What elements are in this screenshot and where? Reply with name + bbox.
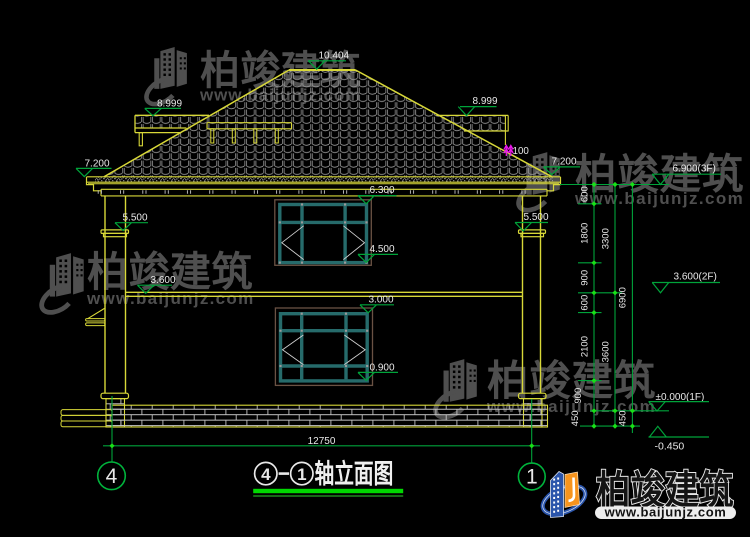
svg-text:5.500: 5.500	[524, 212, 549, 223]
svg-text:450: 450	[570, 410, 581, 426]
svg-text:1: 1	[297, 465, 306, 484]
svg-text:3.600(2F): 3.600(2F)	[674, 272, 717, 283]
svg-text:www.baijunjz.com: www.baijunjz.com	[574, 189, 744, 208]
svg-text:6.900(3F): 6.900(3F)	[673, 164, 716, 175]
svg-text:轴立面图: 轴立面图	[315, 458, 394, 490]
svg-text:12750: 12750	[308, 436, 336, 447]
svg-text:1800: 1800	[580, 223, 591, 244]
svg-text:6900: 6900	[618, 287, 629, 308]
svg-text:100: 100	[513, 146, 530, 157]
svg-text:600: 600	[580, 295, 591, 311]
svg-text:7.200: 7.200	[552, 157, 577, 168]
svg-text:4: 4	[261, 465, 271, 484]
svg-text:1: 1	[526, 466, 538, 489]
svg-text:3300: 3300	[601, 228, 612, 249]
svg-text:3.600: 3.600	[151, 275, 176, 286]
svg-text:-0.450: -0.450	[655, 441, 685, 453]
svg-text:450: 450	[618, 410, 629, 426]
svg-text:3600: 3600	[601, 341, 612, 362]
svg-text:4.500: 4.500	[370, 244, 395, 255]
svg-text:10.404: 10.404	[319, 51, 350, 62]
svg-text:www.baijunjz.com: www.baijunjz.com	[604, 505, 727, 520]
svg-text:6.300: 6.300	[370, 185, 395, 196]
svg-text:600: 600	[580, 186, 591, 202]
svg-text:4: 4	[106, 465, 118, 488]
svg-text:2100: 2100	[580, 336, 591, 357]
svg-text:8.999: 8.999	[473, 96, 498, 107]
svg-text:900: 900	[573, 388, 584, 404]
svg-text:5.500: 5.500	[123, 213, 148, 224]
svg-text:900: 900	[580, 270, 591, 286]
svg-text:8.999: 8.999	[157, 98, 182, 109]
svg-text:3.000: 3.000	[369, 294, 394, 305]
